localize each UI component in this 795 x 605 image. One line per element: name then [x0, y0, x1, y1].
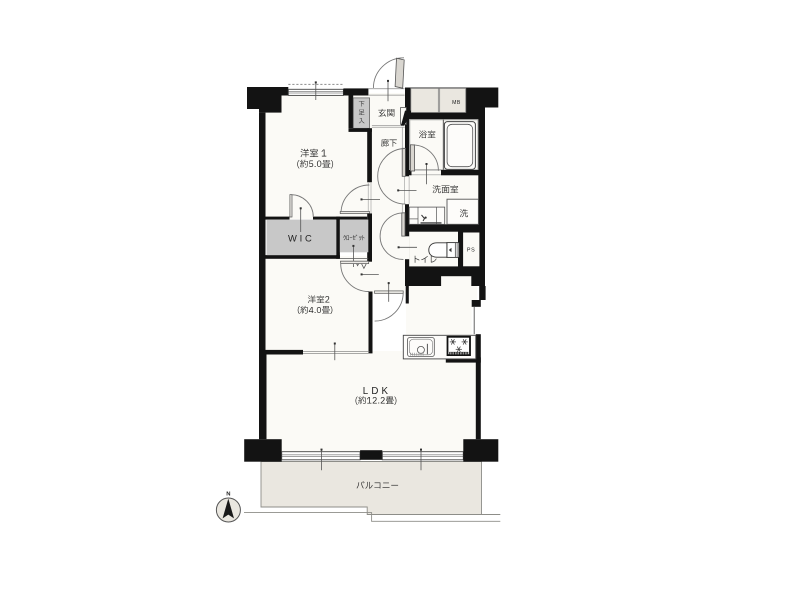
svg-text:MB: MB	[452, 99, 461, 107]
svg-text:ｸﾛｰｾﾞｯﾄ: ｸﾛｰｾﾞｯﾄ	[343, 233, 365, 243]
svg-text:玄関: 玄関	[378, 107, 395, 120]
svg-text:トイレ: トイレ	[412, 253, 438, 266]
svg-text:浴室: 浴室	[419, 129, 437, 142]
svg-text:入: 入	[358, 116, 364, 126]
svg-text:N: N	[226, 490, 230, 499]
svg-text:バルコニー: バルコニー	[356, 480, 399, 493]
svg-text:(約5.0畳): (約5.0畳)	[297, 158, 334, 171]
svg-text:WIC: WIC	[288, 232, 315, 246]
svg-text:(約4.0畳): (約4.0畳)	[297, 304, 333, 317]
svg-text:(約12.2畳): (約12.2畳)	[355, 395, 397, 408]
svg-text:洗: 洗	[459, 208, 468, 221]
svg-text:PS: PS	[467, 247, 475, 255]
svg-text:廊下: 廊下	[381, 137, 398, 150]
svg-text:洗面室: 洗面室	[432, 184, 459, 197]
